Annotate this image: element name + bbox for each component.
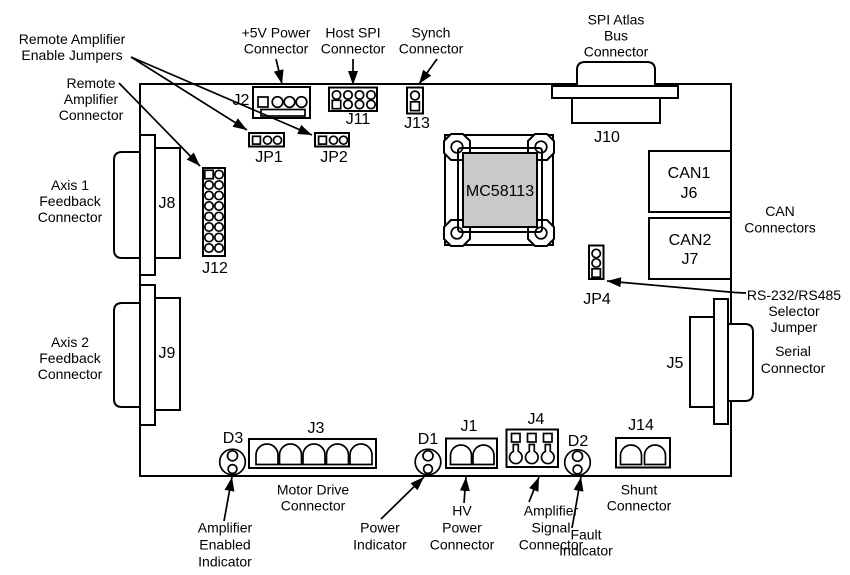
- j5-dsub-shell: [728, 324, 753, 401]
- pin-circle: [205, 244, 213, 252]
- pin-square: [205, 170, 213, 178]
- callout-line: Host SPI: [325, 25, 380, 41]
- pin-circle: [205, 202, 213, 210]
- connector-j7: CAN2 J7: [649, 218, 731, 279]
- d1-led-die: [423, 451, 433, 461]
- callout-rs232-rs485-selector-jumper: RS-232/RS485 Selector Jumper: [747, 287, 841, 335]
- pin-circle: [215, 191, 223, 199]
- pin-circle: [284, 97, 295, 108]
- callout-line: Indicator: [353, 537, 407, 553]
- j5-body: [690, 317, 714, 407]
- jumper-jp2: JP2: [315, 133, 349, 166]
- pin-circle: [215, 170, 223, 178]
- d3-ref-label: D3: [223, 430, 244, 447]
- jp4-ref-label: JP4: [583, 291, 611, 308]
- callout-shunt-connector: Shunt Connector: [607, 482, 672, 514]
- pin-circle: [332, 91, 340, 99]
- arrow-synch-to-j13: [419, 59, 437, 84]
- callout-line: Power: [360, 520, 400, 536]
- d3-led-die: [228, 465, 237, 474]
- callout-remote-amplifier-connector: Remote Amplifier Connector: [59, 75, 124, 123]
- callout-line: Axis 2: [51, 334, 89, 350]
- j10-dsub-shell: [577, 62, 655, 88]
- pin-circle: [205, 212, 213, 220]
- d1-led-die: [424, 465, 433, 474]
- j10-ref-label: J10: [594, 129, 620, 146]
- callout-line: Connector: [281, 498, 346, 514]
- callout-line: Shunt: [621, 482, 658, 498]
- pin-square: [332, 100, 340, 108]
- callout-line: Axis 1: [51, 177, 89, 193]
- connector-j6: CAN1 J6: [649, 151, 731, 212]
- j10-body: [572, 98, 660, 123]
- can1-label: CAN1: [668, 165, 711, 182]
- callout-line: Connector: [430, 537, 495, 553]
- connector-j8: J8: [114, 135, 180, 275]
- j1-pin-arch: [451, 445, 472, 464]
- indicator-d3: D3: [220, 430, 246, 475]
- j6-ref-label: J6: [681, 185, 698, 202]
- j11-ref-label: J11: [346, 111, 371, 128]
- j13-ref-label: J13: [404, 115, 430, 132]
- chip-part-label: MC58113: [466, 183, 534, 200]
- callout-line: Serial: [775, 343, 811, 359]
- pin-circle: [205, 181, 213, 189]
- j7-ref-label: J7: [682, 251, 699, 268]
- d2-ref-label: D2: [568, 433, 589, 450]
- callout-line: Jumper: [771, 319, 818, 335]
- pin-circle: [330, 136, 338, 144]
- pin-circle: [215, 223, 223, 231]
- callout-line: Amplifier: [524, 503, 579, 519]
- callout-line: Selector: [768, 303, 820, 319]
- callout-line: Enable Jumpers: [21, 47, 122, 63]
- callout-line: Amplifier: [198, 520, 253, 536]
- callout-line: Connector: [761, 360, 826, 376]
- callout-line: Connector: [321, 41, 386, 57]
- pin-circle: [215, 181, 223, 189]
- pin-circle: [215, 244, 223, 252]
- callout-line: Motor Drive: [277, 482, 350, 498]
- pin-circle: [215, 212, 223, 220]
- pin-square: [512, 434, 521, 443]
- pin-circle: [592, 249, 600, 257]
- connector-j9: J9: [114, 285, 180, 425]
- callout-host-spi-connector: Host SPI Connector: [321, 25, 386, 57]
- pin-square: [258, 97, 268, 107]
- j9-ref-label: J9: [159, 345, 176, 362]
- j14-ref-label: J14: [628, 417, 654, 434]
- pin-circle: [355, 91, 363, 99]
- callout-line: Synch: [412, 25, 451, 41]
- can2-label: CAN2: [669, 232, 712, 249]
- callout-axis1-feedback-connector: Axis 1 Feedback Connector: [38, 177, 103, 225]
- callout-line: CAN: [765, 203, 795, 219]
- pin-square: [411, 102, 420, 111]
- callout-synch-connector: Synch Connector: [399, 25, 464, 57]
- callout-line: Remote Amplifier: [19, 31, 126, 47]
- callout-line: RS-232/RS485: [747, 287, 841, 303]
- callout-amplifier-enabled-indicator: Amplifier Enabled Indicator: [198, 520, 253, 570]
- d2-led-die: [573, 451, 583, 461]
- pin-circle: [205, 223, 213, 231]
- callout-spi-atlas-bus-connector: SPI Atlas Bus Connector: [584, 12, 649, 60]
- callout-line: Connectors: [744, 220, 816, 236]
- pin-square: [544, 434, 553, 443]
- pin-circle: [215, 202, 223, 210]
- callout-line: Indicator: [559, 543, 613, 559]
- pin-circle: [411, 91, 420, 100]
- callout-remote-amplifier-enable-jumpers: Remote Amplifier Enable Jumpers: [19, 31, 126, 63]
- jumper-jp1: JP1: [249, 133, 284, 166]
- callout-line: Connector: [584, 44, 649, 60]
- arrow-amp-enabled-to-d3: [224, 477, 232, 521]
- pin-circle: [367, 91, 375, 99]
- callout-line: Feedback: [39, 350, 101, 366]
- j3-pin-arch: [256, 444, 278, 465]
- callout-line: Enabled: [199, 537, 250, 553]
- pin-circle: [344, 91, 352, 99]
- board-layout-diagram: J8 J9 J5 J10 J2: [0, 0, 850, 575]
- callout-line: SPI Atlas: [588, 12, 645, 28]
- pin-circle: [367, 100, 375, 108]
- pin-circle: [355, 100, 363, 108]
- pin-square: [528, 434, 537, 443]
- jp2-ref-label: JP2: [320, 149, 348, 166]
- callout-line: Amplifier: [64, 91, 119, 107]
- callout-line: Connector: [244, 41, 309, 57]
- callout-line: Connector: [399, 41, 464, 57]
- pin-square: [253, 136, 261, 144]
- j4-ref-label: J4: [528, 411, 545, 428]
- arrow-5v-power-to-j2: [276, 59, 282, 84]
- arrow-amp-signal-to-j4: [529, 477, 539, 502]
- j3-pin-arch: [350, 444, 372, 465]
- j8-flange: [140, 135, 155, 275]
- j3-pin-arch: [327, 444, 349, 465]
- callout-line: Signal: [532, 520, 571, 536]
- j5-ref-label: J5: [667, 355, 684, 372]
- chip-mc58113: MC58113: [444, 134, 554, 246]
- pin-circle: [340, 136, 348, 144]
- j1-pin-arch: [473, 445, 494, 464]
- callout-line: Connector: [38, 366, 103, 382]
- indicator-d2: D2: [565, 433, 591, 475]
- j5-flange: [714, 299, 728, 424]
- diagram-canvas: J8 J9 J5 J10 J2: [0, 0, 850, 575]
- pin-square: [319, 136, 327, 144]
- j3-pin-arch: [303, 444, 325, 465]
- callout-line: Fault: [570, 527, 601, 543]
- j10-flange: [552, 86, 678, 98]
- j8-ref-label: J8: [159, 195, 176, 212]
- j3-pin-arch: [280, 444, 302, 465]
- callout-line: Power: [442, 520, 482, 536]
- indicator-d1: D1: [415, 431, 441, 475]
- callout-power-indicator: Power Indicator: [353, 520, 407, 553]
- callout-axis2-feedback-connector: Axis 2 Feedback Connector: [38, 334, 103, 382]
- callout-hv-power-connector: HV Power Connector: [430, 503, 495, 553]
- callout-line: Bus: [604, 28, 628, 44]
- callout-motor-drive-connector: Motor Drive Connector: [277, 482, 350, 514]
- callout-line: Connector: [607, 498, 672, 514]
- pin-circle: [264, 136, 272, 144]
- callout-line: Connector: [38, 209, 103, 225]
- pin-circle: [215, 233, 223, 241]
- callout-line: +5V Power: [242, 25, 311, 41]
- pin-circle: [592, 259, 600, 267]
- pin-circle: [272, 97, 283, 108]
- j9-dsub-shell: [114, 303, 141, 407]
- callout-serial-connector: Serial Connector: [761, 343, 826, 376]
- j14-pin-arch: [621, 445, 642, 464]
- callout-line: Indicator: [198, 554, 252, 570]
- d3-led-die: [228, 451, 238, 461]
- arrow-hv-power-to-j1: [464, 477, 466, 503]
- j14-pin-arch: [645, 445, 666, 464]
- jp1-ref-label: JP1: [255, 149, 283, 166]
- d2-led-die: [573, 465, 582, 474]
- callout-5v-power-connector: +5V Power Connector: [242, 25, 311, 57]
- pin-circle: [205, 233, 213, 241]
- callout-line: Connector: [59, 107, 124, 123]
- pin-square: [592, 269, 600, 277]
- j3-ref-label: J3: [308, 420, 325, 437]
- pin-circle: [274, 136, 282, 144]
- pin-circle: [205, 191, 213, 199]
- j8-dsub-shell: [114, 152, 141, 258]
- j12-ref-label: J12: [202, 260, 228, 277]
- arrow-power-ind-to-d1: [381, 477, 424, 519]
- j1-ref-label: J1: [461, 418, 478, 435]
- connector-j12: J12: [202, 168, 228, 277]
- callout-can-connectors: CAN Connectors: [744, 203, 816, 236]
- d1-ref-label: D1: [418, 431, 439, 448]
- pin-circle: [296, 97, 307, 108]
- j9-flange: [140, 285, 155, 425]
- callout-line: HV: [452, 503, 472, 519]
- callout-line: Feedback: [39, 193, 101, 209]
- pin-circle: [344, 100, 352, 108]
- callout-line: Remote: [66, 75, 115, 91]
